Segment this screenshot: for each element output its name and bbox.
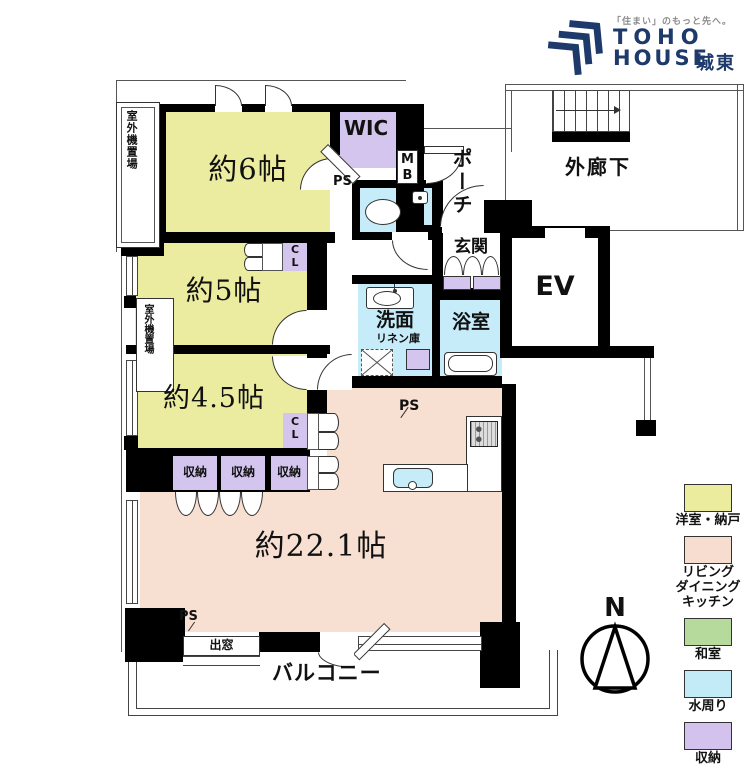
stove-icon	[470, 421, 498, 447]
door-gap	[545, 228, 585, 238]
closet-door-gap	[262, 243, 283, 271]
bathroom-label: 浴室	[440, 312, 502, 333]
linen-cabinet	[406, 349, 430, 370]
bay-window-glass	[183, 656, 260, 666]
closet-door-arc	[244, 257, 262, 271]
wall	[352, 376, 502, 388]
entrance-step-arc	[482, 256, 499, 275]
legend: 洋室・納戸 リビング ダイニング キッチン 和室 水周り 収納	[668, 484, 748, 774]
storage-label: 収納	[221, 466, 265, 479]
wall	[352, 180, 432, 188]
toilet-tank-icon	[412, 191, 428, 204]
washroom-label: 洗面	[363, 310, 427, 331]
line	[121, 250, 122, 652]
line	[743, 84, 744, 231]
legend-swatch-japanese	[684, 618, 732, 646]
logo-mark-icon	[543, 6, 618, 81]
door-arc	[215, 85, 242, 106]
entrance-tile	[443, 276, 471, 290]
wall	[352, 275, 440, 284]
room-label-bedroom-4-5: 約4.5帖	[146, 384, 282, 414]
window	[126, 256, 138, 296]
outdoor-unit-label: 室外機置場	[125, 110, 137, 242]
compass-north-label: N	[597, 594, 633, 623]
wall	[500, 222, 512, 358]
outdoor-unit-label: 室外機置場	[140, 304, 155, 388]
logo-region: 城東	[696, 49, 736, 75]
line	[737, 84, 738, 231]
storage-label: 収納	[173, 466, 217, 479]
wall	[125, 608, 185, 662]
wall	[636, 420, 656, 436]
outdoor-unit-box	[116, 102, 160, 248]
legend-swatch-ldk	[684, 536, 732, 564]
line	[116, 80, 406, 81]
storage-door-gap	[307, 456, 319, 490]
door-arc	[265, 85, 292, 106]
line	[650, 358, 651, 426]
entrance-tile	[473, 276, 501, 290]
kitchen-sink-icon	[393, 468, 433, 488]
wall	[500, 346, 610, 358]
closet-door-arc	[319, 413, 339, 432]
bathtub-icon	[444, 352, 497, 376]
wall	[352, 180, 360, 240]
wall	[135, 232, 335, 243]
washer-pan-icon	[361, 349, 393, 376]
wall	[598, 226, 610, 358]
legend-label-storage: 収納	[668, 752, 748, 767]
meter-box-label: MB	[398, 152, 417, 183]
corridor-label: 外廊下	[565, 156, 631, 178]
stairs-arrow	[556, 110, 616, 111]
toilet-bowl-icon	[365, 199, 401, 225]
storage-door-arc	[319, 456, 339, 473]
room-label-bedroom-5: 約5帖	[162, 276, 286, 307]
legend-label-western: 洋室・納戸	[668, 514, 748, 529]
porch-label: ポーチ	[450, 148, 472, 260]
line	[424, 128, 512, 129]
line	[505, 84, 743, 85]
legend-label-water: 水周り	[668, 700, 748, 715]
legend-label-japanese: 和室	[668, 648, 748, 663]
stairs-arrow-head	[614, 106, 621, 114]
window	[126, 500, 138, 604]
washbasin-icon	[366, 287, 414, 309]
wall	[259, 632, 320, 652]
closet-door-gap	[307, 413, 319, 450]
balcony-label: バルコニー	[272, 662, 382, 685]
line	[511, 90, 512, 152]
wall	[502, 384, 516, 640]
room-label-ldk: 約22.1帖	[238, 530, 404, 563]
door-gap	[392, 232, 428, 240]
door-arc	[392, 240, 428, 270]
storage-label: 収納	[271, 466, 307, 479]
closet-label: CL	[284, 244, 306, 269]
ps-label: PS	[399, 399, 419, 414]
ps-label: PS	[179, 610, 198, 624]
closet-door-arc	[319, 432, 339, 450]
linen-label: リネン庫	[376, 333, 420, 345]
legend-label-ldk: リビング ダイニング キッチン	[668, 566, 748, 611]
legend-swatch-western	[684, 484, 732, 512]
wall	[598, 346, 654, 358]
compass-icon	[578, 620, 652, 696]
storage-door-arc	[319, 473, 339, 490]
legend-swatch-water	[684, 670, 732, 698]
ps-label: PS	[333, 175, 352, 189]
closet-door-arc	[244, 243, 262, 257]
stairs-landing	[552, 132, 630, 142]
legend-swatch-storage	[684, 722, 732, 750]
bay-window-label: 出窓	[183, 639, 260, 652]
wall	[124, 296, 136, 308]
room-label-wic: WIC	[344, 117, 388, 139]
elevator-label: EV	[512, 272, 598, 302]
logo: 「住まい」のもっと先へ。 TOHO HOUSE 城東	[548, 8, 748, 70]
floor-plan: 約6帖 約5帖 約4.5帖 約22.1帖 WIC PS PS PS MB CL …	[0, 0, 750, 750]
door-gap	[307, 310, 327, 345]
line	[610, 230, 743, 231]
wall	[480, 622, 520, 688]
room-label-bedroom-6: 約6帖	[183, 154, 313, 186]
closet-label: CL	[284, 416, 306, 441]
wall	[432, 180, 443, 296]
line	[644, 358, 645, 426]
